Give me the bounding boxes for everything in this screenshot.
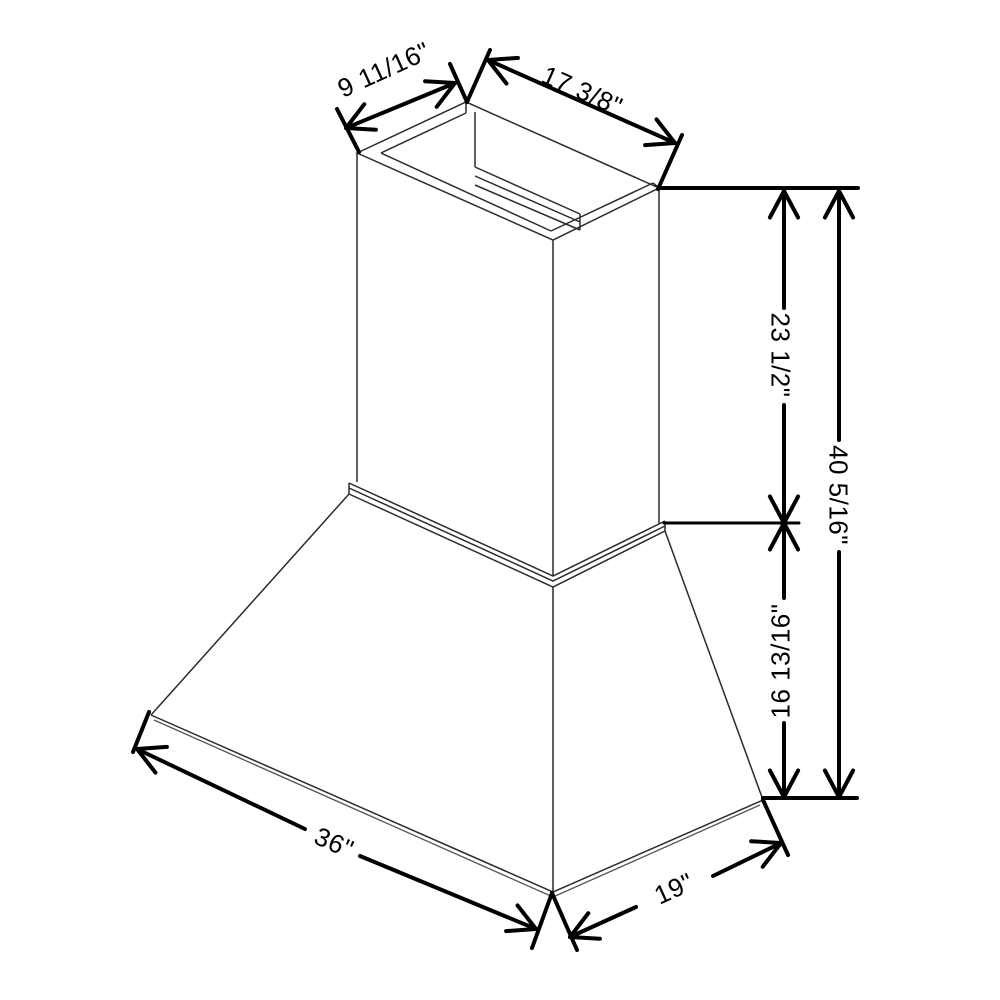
chimney-outline [357, 102, 659, 576]
chimney-top-rim-outer [357, 102, 659, 240]
hood-bottom-rim [151, 715, 763, 892]
label-hood-height: 16 13/16" [766, 604, 797, 719]
hood-trim-band [349, 483, 665, 587]
hood-bottom-rim-inner [154, 720, 760, 897]
extension-tick [532, 893, 552, 948]
range-hood-dimension-drawing: 9 11/16" 17 3/8" 23 1/2" 40 5/16" 16 13/… [0, 0, 1000, 1000]
hood-slope-edges [151, 494, 763, 892]
label-overall-height: 40 5/16" [823, 445, 854, 545]
hood-outline [151, 483, 763, 897]
extension-tick [133, 712, 149, 752]
label-chimney-height: 23 1/2" [765, 312, 796, 397]
chimney-top-rim-inner [381, 102, 659, 231]
extension-tick [552, 893, 577, 950]
extension-tick [467, 50, 490, 102]
